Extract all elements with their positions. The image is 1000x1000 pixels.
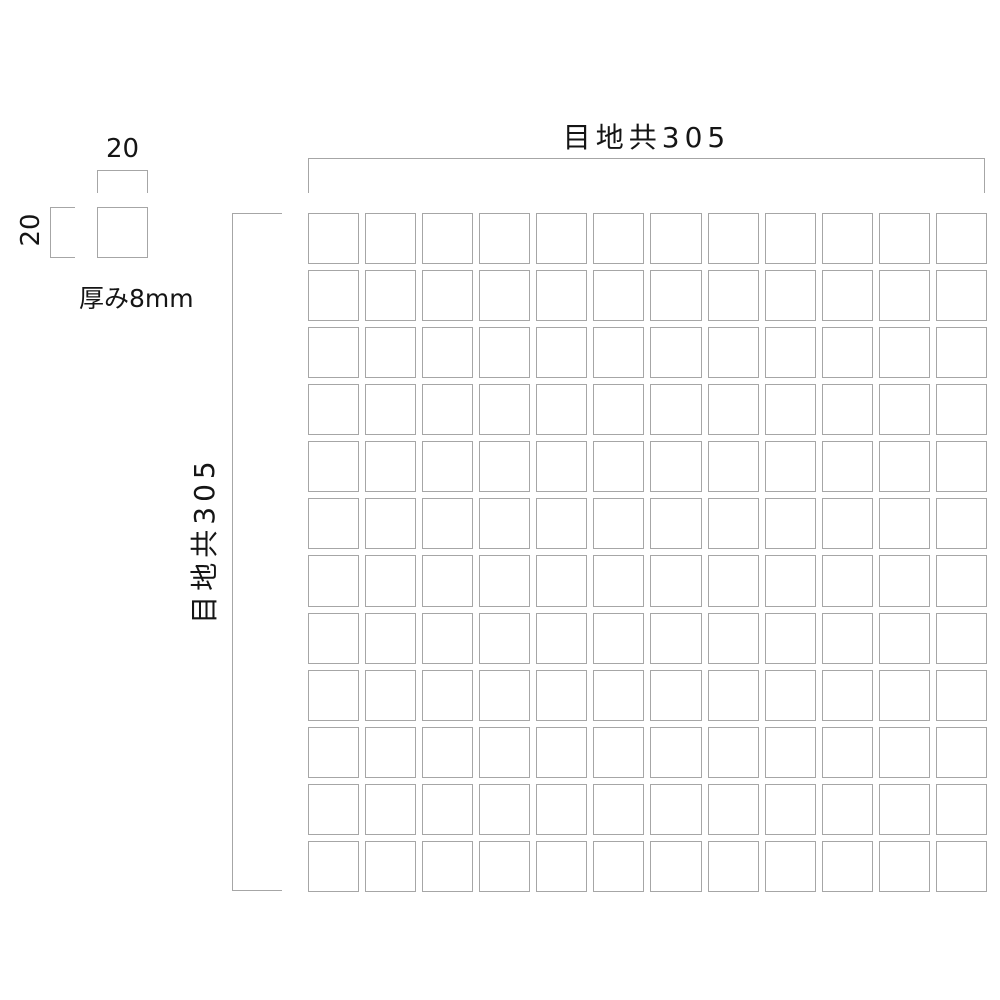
- tile-cell: [650, 670, 701, 721]
- horizontal-dimension-label: 目地共305: [308, 116, 985, 156]
- tile-cell: [936, 613, 987, 664]
- tile-cell: [308, 327, 359, 378]
- tile-cell: [422, 613, 473, 664]
- tile-grid: [308, 213, 987, 892]
- tile-cell: [308, 498, 359, 549]
- tile-cell: [365, 841, 416, 892]
- tile-cell: [593, 327, 644, 378]
- tile-cell: [708, 727, 759, 778]
- tile-cell: [308, 213, 359, 264]
- tile-cell: [822, 327, 873, 378]
- tile-cell: [708, 270, 759, 321]
- tile-cell: [650, 555, 701, 606]
- tile-cell: [879, 327, 930, 378]
- tile-height-dimension-line: [50, 207, 75, 258]
- tile-cell: [365, 441, 416, 492]
- tile-cell: [822, 613, 873, 664]
- tile-cell: [365, 498, 416, 549]
- tile-cell: [650, 213, 701, 264]
- tile-cell: [936, 727, 987, 778]
- tile-height-label: 20: [16, 213, 46, 246]
- tile-cell: [308, 670, 359, 721]
- tile-cell: [708, 841, 759, 892]
- tile-cell: [422, 670, 473, 721]
- tile-cell: [879, 555, 930, 606]
- tile-cell: [879, 784, 930, 835]
- tile-cell: [650, 384, 701, 435]
- tile-cell: [822, 441, 873, 492]
- tile-cell: [479, 670, 530, 721]
- tile-cell: [708, 498, 759, 549]
- tile-cell: [593, 270, 644, 321]
- tile-cell: [593, 498, 644, 549]
- tile-cell: [879, 613, 930, 664]
- tile-cell: [365, 327, 416, 378]
- tile-cell: [365, 213, 416, 264]
- tile-cell: [536, 784, 587, 835]
- tile-cell: [765, 213, 816, 264]
- tile-cell: [879, 384, 930, 435]
- tile-cell: [765, 670, 816, 721]
- tile-cell: [365, 613, 416, 664]
- tile-cell: [765, 441, 816, 492]
- tile-cell: [650, 841, 701, 892]
- tile-thickness-label: 厚み8mm: [79, 279, 194, 315]
- tile-cell: [879, 270, 930, 321]
- tile-cell: [822, 270, 873, 321]
- tile-cell: [536, 613, 587, 664]
- tile-cell: [422, 384, 473, 435]
- tile-cell: [650, 441, 701, 492]
- tile-cell: [936, 327, 987, 378]
- tile-cell: [536, 327, 587, 378]
- tile-cell: [536, 213, 587, 264]
- tile-cell: [765, 555, 816, 606]
- tile-cell: [708, 784, 759, 835]
- tile-cell: [479, 270, 530, 321]
- tile-cell: [765, 841, 816, 892]
- tile-cell: [822, 670, 873, 721]
- tile-cell: [822, 555, 873, 606]
- tile-cell: [765, 498, 816, 549]
- tile-cell: [365, 727, 416, 778]
- tile-cell: [708, 555, 759, 606]
- tile-cell: [593, 841, 644, 892]
- tile-cell: [365, 270, 416, 321]
- tile-cell: [936, 784, 987, 835]
- vertical-dimension-line: [232, 213, 282, 891]
- tile-cell: [936, 270, 987, 321]
- tile-cell: [479, 613, 530, 664]
- tile-cell: [650, 784, 701, 835]
- tile-cell: [536, 670, 587, 721]
- tile-cell: [822, 841, 873, 892]
- tile-cell: [708, 327, 759, 378]
- tile-cell: [708, 613, 759, 664]
- tile-cell: [879, 213, 930, 264]
- tile-cell: [879, 670, 930, 721]
- tile-cell: [650, 498, 701, 549]
- tile-cell: [365, 384, 416, 435]
- tile-cell: [822, 784, 873, 835]
- tile-cell: [479, 327, 530, 378]
- tile-cell: [593, 384, 644, 435]
- single-tile-detail: [97, 207, 148, 258]
- tile-cell: [765, 384, 816, 435]
- tile-cell: [479, 384, 530, 435]
- tile-cell: [593, 213, 644, 264]
- tile-cell: [422, 441, 473, 492]
- tile-cell: [936, 841, 987, 892]
- tile-cell: [822, 384, 873, 435]
- tile-cell: [708, 441, 759, 492]
- tile-cell: [936, 441, 987, 492]
- tile-cell: [650, 727, 701, 778]
- tile-cell: [308, 555, 359, 606]
- tile-cell: [308, 727, 359, 778]
- tile-cell: [365, 670, 416, 721]
- tile-cell: [422, 327, 473, 378]
- tile-width-dimension-line: [97, 170, 148, 193]
- horizontal-dimension-line: [308, 158, 985, 193]
- tile-cell: [936, 384, 987, 435]
- tile-cell: [536, 727, 587, 778]
- tile-cell: [936, 213, 987, 264]
- tile-dimension-drawing: 目地共305 目地共305 20 20 厚み8mm: [0, 0, 1000, 1000]
- tile-cell: [936, 670, 987, 721]
- tile-cell: [765, 613, 816, 664]
- tile-cell: [422, 498, 473, 549]
- tile-cell: [479, 213, 530, 264]
- tile-cell: [308, 613, 359, 664]
- tile-cell: [879, 498, 930, 549]
- tile-cell: [650, 270, 701, 321]
- tile-cell: [765, 784, 816, 835]
- tile-cell: [536, 384, 587, 435]
- tile-cell: [479, 498, 530, 549]
- tile-cell: [593, 555, 644, 606]
- tile-cell: [422, 841, 473, 892]
- tile-cell: [365, 784, 416, 835]
- tile-cell: [822, 727, 873, 778]
- tile-cell: [308, 784, 359, 835]
- tile-cell: [479, 441, 530, 492]
- tile-cell: [479, 841, 530, 892]
- tile-cell: [536, 841, 587, 892]
- tile-cell: [822, 498, 873, 549]
- tile-cell: [879, 841, 930, 892]
- tile-cell: [593, 727, 644, 778]
- tile-cell: [593, 613, 644, 664]
- tile-cell: [765, 327, 816, 378]
- tile-cell: [536, 555, 587, 606]
- tile-cell: [650, 327, 701, 378]
- tile-cell: [593, 670, 644, 721]
- tile-cell: [708, 384, 759, 435]
- vertical-dimension-label: 目地共305: [183, 456, 223, 623]
- tile-cell: [479, 784, 530, 835]
- tile-cell: [708, 670, 759, 721]
- tile-cell: [936, 498, 987, 549]
- tile-cell: [422, 270, 473, 321]
- tile-cell: [536, 270, 587, 321]
- tile-cell: [308, 441, 359, 492]
- tile-cell: [422, 555, 473, 606]
- tile-cell: [765, 727, 816, 778]
- tile-cell: [479, 727, 530, 778]
- tile-cell: [365, 555, 416, 606]
- tile-cell: [422, 727, 473, 778]
- tile-cell: [650, 613, 701, 664]
- tile-cell: [308, 384, 359, 435]
- tile-cell: [593, 784, 644, 835]
- tile-cell: [479, 555, 530, 606]
- tile-cell: [879, 441, 930, 492]
- tile-cell: [879, 727, 930, 778]
- tile-cell: [536, 441, 587, 492]
- tile-cell: [422, 784, 473, 835]
- tile-cell: [593, 441, 644, 492]
- tile-cell: [308, 841, 359, 892]
- tile-cell: [308, 270, 359, 321]
- tile-cell: [822, 213, 873, 264]
- tile-cell: [422, 213, 473, 264]
- tile-cell: [936, 555, 987, 606]
- tile-cell: [765, 270, 816, 321]
- tile-cell: [536, 498, 587, 549]
- tile-width-label: 20: [72, 134, 173, 164]
- tile-cell: [708, 213, 759, 264]
